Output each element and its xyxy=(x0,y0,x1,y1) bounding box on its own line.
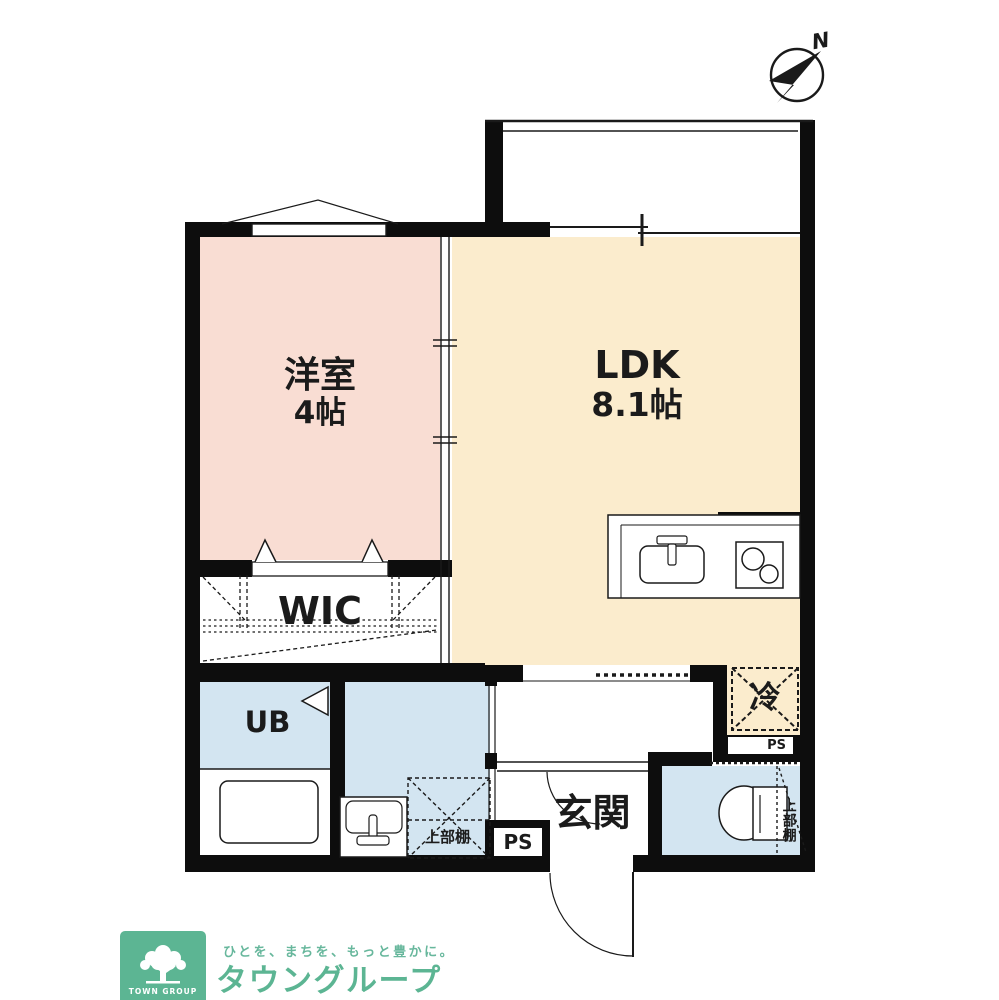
wic-label: WIC xyxy=(255,590,385,633)
ldk-opening-marks xyxy=(523,675,690,681)
wall-hall-right xyxy=(713,665,727,762)
wall-hall-stub-b xyxy=(485,753,497,769)
washroom-shelf-label: 上部棚 xyxy=(405,829,490,846)
ps-duct-nook-label: PS xyxy=(767,738,786,753)
wall-balcony-left xyxy=(485,120,503,237)
town-group-logo: TOWN GROUP xyxy=(120,931,206,1000)
balcony-outline xyxy=(485,121,813,131)
wall-left xyxy=(185,222,200,872)
wall-ub-washroom xyxy=(330,678,345,858)
fridge-label: 冷 xyxy=(735,681,795,716)
wall-kitchen-stub xyxy=(718,512,800,527)
ldk-name: LDK xyxy=(557,344,717,387)
wall-bottom-left xyxy=(185,855,550,872)
wall-right xyxy=(800,120,815,872)
tree-icon xyxy=(132,941,194,987)
ps-duct-nook: PS xyxy=(728,737,793,754)
bedroom-name: 洋室 xyxy=(240,356,400,396)
ldk-label: LDK 8.1帖 xyxy=(557,344,717,424)
wall-hall-stub-a xyxy=(485,672,497,686)
entrance-door-arc-icon xyxy=(550,872,633,957)
brand-name: タウングループ xyxy=(216,955,442,1000)
ldk-size: 8.1帖 xyxy=(557,387,717,424)
bedroom-size: 4帖 xyxy=(240,396,400,431)
wall-closet-left xyxy=(185,560,252,577)
toilet-shelf-label: 上部棚 xyxy=(780,784,796,856)
north-label: N xyxy=(810,29,831,55)
bathtub-icon xyxy=(200,769,330,843)
wall-closet-right xyxy=(388,560,452,577)
entrance-label: 玄関 xyxy=(520,792,665,835)
ub-label: UB xyxy=(220,706,315,738)
compass-icon xyxy=(769,49,823,103)
floor-plan-page: PS PS xyxy=(0,0,999,1000)
bedroom-label: 洋室 4帖 xyxy=(240,356,400,431)
room-ldk xyxy=(452,237,800,665)
logo-caption: TOWN GROUP xyxy=(129,987,198,996)
entrance-step-lines xyxy=(497,762,648,771)
